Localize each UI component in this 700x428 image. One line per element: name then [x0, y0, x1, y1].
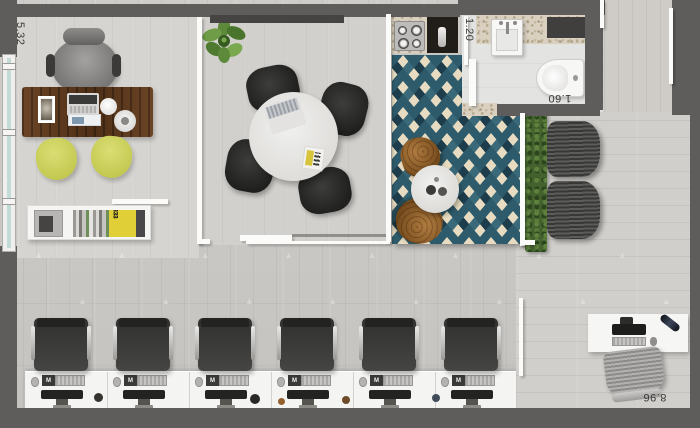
passage-wall-left	[600, 0, 604, 28]
plant-icon	[202, 17, 246, 63]
wall-top-right	[458, 0, 605, 15]
lounge-wall	[520, 113, 525, 246]
keyboard-icon	[301, 375, 331, 386]
cup-icon	[434, 177, 439, 182]
window-left	[2, 54, 16, 252]
photo-frame-icon	[38, 96, 55, 123]
task-chair	[34, 318, 88, 371]
window-mullion	[2, 198, 16, 205]
lounge-armchair	[547, 121, 600, 177]
cup-icon	[250, 394, 260, 404]
keyboard-icon	[55, 375, 85, 386]
burner-icon	[398, 38, 409, 49]
wall-left-lower	[0, 246, 17, 428]
meeting-room-wall-left	[197, 17, 202, 244]
bathroom-niche	[547, 17, 586, 38]
cup-icon	[342, 396, 350, 404]
bathroom-door	[469, 59, 476, 106]
monitor-icon	[123, 390, 165, 399]
keyboard-badge: M	[452, 375, 465, 386]
office-chair-armrest	[112, 54, 121, 77]
dimension-label-bottom: 8.96	[643, 391, 666, 403]
keyboard-badge: M	[206, 375, 219, 386]
chair-back	[201, 318, 249, 327]
keyboard-icon	[137, 375, 167, 386]
keyboard-badge: M	[288, 375, 301, 386]
floor-entry-passage	[604, 0, 672, 112]
burner-icon	[398, 26, 407, 35]
monitor-icon	[41, 390, 83, 399]
dimension-label-bath-door: 1.20	[463, 18, 475, 41]
office-chair-headrest	[63, 28, 105, 45]
burner-icon	[412, 39, 421, 48]
bathroom-sink	[491, 19, 523, 56]
phone-icon	[659, 313, 681, 333]
floor-watermark	[78, 296, 671, 306]
desk-area-divider-wall	[519, 298, 523, 376]
chair-back	[365, 318, 413, 327]
wall-shadow	[292, 234, 390, 237]
desk-divider	[271, 372, 272, 411]
wall-end-cap	[197, 239, 210, 244]
cup-icon	[438, 187, 447, 196]
books-row	[73, 210, 113, 237]
monitor-icon	[369, 390, 411, 399]
monitor-icon	[287, 390, 329, 399]
keyboard-badge: M	[370, 375, 383, 386]
cup-icon	[426, 185, 436, 195]
hedge-planter	[525, 112, 547, 252]
window-glass	[7, 58, 11, 248]
dimension-label-left: 5.32	[14, 22, 26, 45]
window-mullion	[2, 63, 16, 70]
meeting-room-wall-right	[386, 14, 391, 242]
printer-icon	[34, 210, 63, 237]
cup-icon	[100, 98, 117, 115]
wall-right	[690, 0, 700, 428]
passage-wall-right	[669, 8, 673, 84]
cup-icon	[432, 394, 440, 402]
kitchen-sink	[427, 15, 458, 53]
desk-divider	[353, 372, 354, 411]
keyboard-badge: M	[42, 375, 55, 386]
documents-icon	[68, 114, 101, 126]
task-chair	[362, 318, 416, 371]
faucet-knob	[513, 21, 517, 25]
meeting-room-shelf	[210, 15, 344, 23]
cooktop-icon	[394, 21, 425, 51]
mouse-icon	[31, 377, 39, 387]
workstation-desk-row: M M M M M M	[25, 371, 516, 410]
book-spine	[136, 210, 145, 237]
wall-end-cap	[520, 240, 535, 245]
task-chair	[444, 318, 498, 371]
mouse-icon	[359, 377, 367, 387]
mouse-icon	[277, 377, 285, 387]
dimension-label-bath-width: 1.60	[548, 92, 571, 104]
wall-bottom	[0, 408, 700, 428]
sideboard: 333333333	[27, 205, 151, 240]
keyboard-icon	[219, 375, 249, 386]
cup-icon	[278, 398, 285, 405]
mouse-icon	[650, 337, 657, 346]
task-chair	[198, 318, 252, 371]
chair-back	[37, 318, 85, 327]
notepad-icon	[302, 146, 326, 172]
desk-divider	[107, 372, 108, 411]
lounge-armchair	[547, 181, 600, 239]
desk-tray-icon	[114, 110, 136, 132]
monitor-icon	[205, 390, 247, 399]
cup-icon	[94, 393, 103, 402]
chair-back	[447, 318, 495, 327]
chair-back	[283, 318, 331, 327]
mouse-icon	[195, 377, 203, 387]
lounge-table	[411, 165, 459, 213]
mouse-icon	[113, 377, 121, 387]
monitor-icon	[451, 390, 493, 399]
bathroom-threshold	[462, 103, 498, 116]
laptop-icon	[67, 93, 99, 116]
chair-back	[119, 318, 167, 327]
wall-segment	[112, 199, 168, 204]
faucet-knob	[499, 21, 503, 25]
meeting-room-wall-bottom	[246, 241, 390, 244]
keyboard-icon	[465, 375, 495, 386]
desk-divider	[189, 372, 190, 411]
keyboard-icon	[383, 375, 413, 386]
monitor-icon	[612, 324, 646, 335]
floor-plan: 333333333 M M M	[0, 0, 700, 428]
office-chair	[52, 38, 118, 93]
book-spine-text: 333	[111, 210, 118, 219]
office-chair-armrest	[46, 54, 55, 77]
task-chair	[280, 318, 334, 371]
keyboard-badge: M	[124, 375, 137, 386]
mouse-icon	[441, 377, 449, 387]
task-chair	[116, 318, 170, 371]
bottle-icon	[438, 27, 446, 47]
burner-icon	[411, 25, 422, 36]
window-mullion	[2, 129, 16, 136]
side-desk	[588, 314, 688, 352]
side-desk-chair	[603, 346, 666, 397]
yellow-books: 333333333	[109, 210, 136, 237]
keyboard-icon	[612, 337, 646, 346]
desk-divider	[435, 372, 436, 411]
